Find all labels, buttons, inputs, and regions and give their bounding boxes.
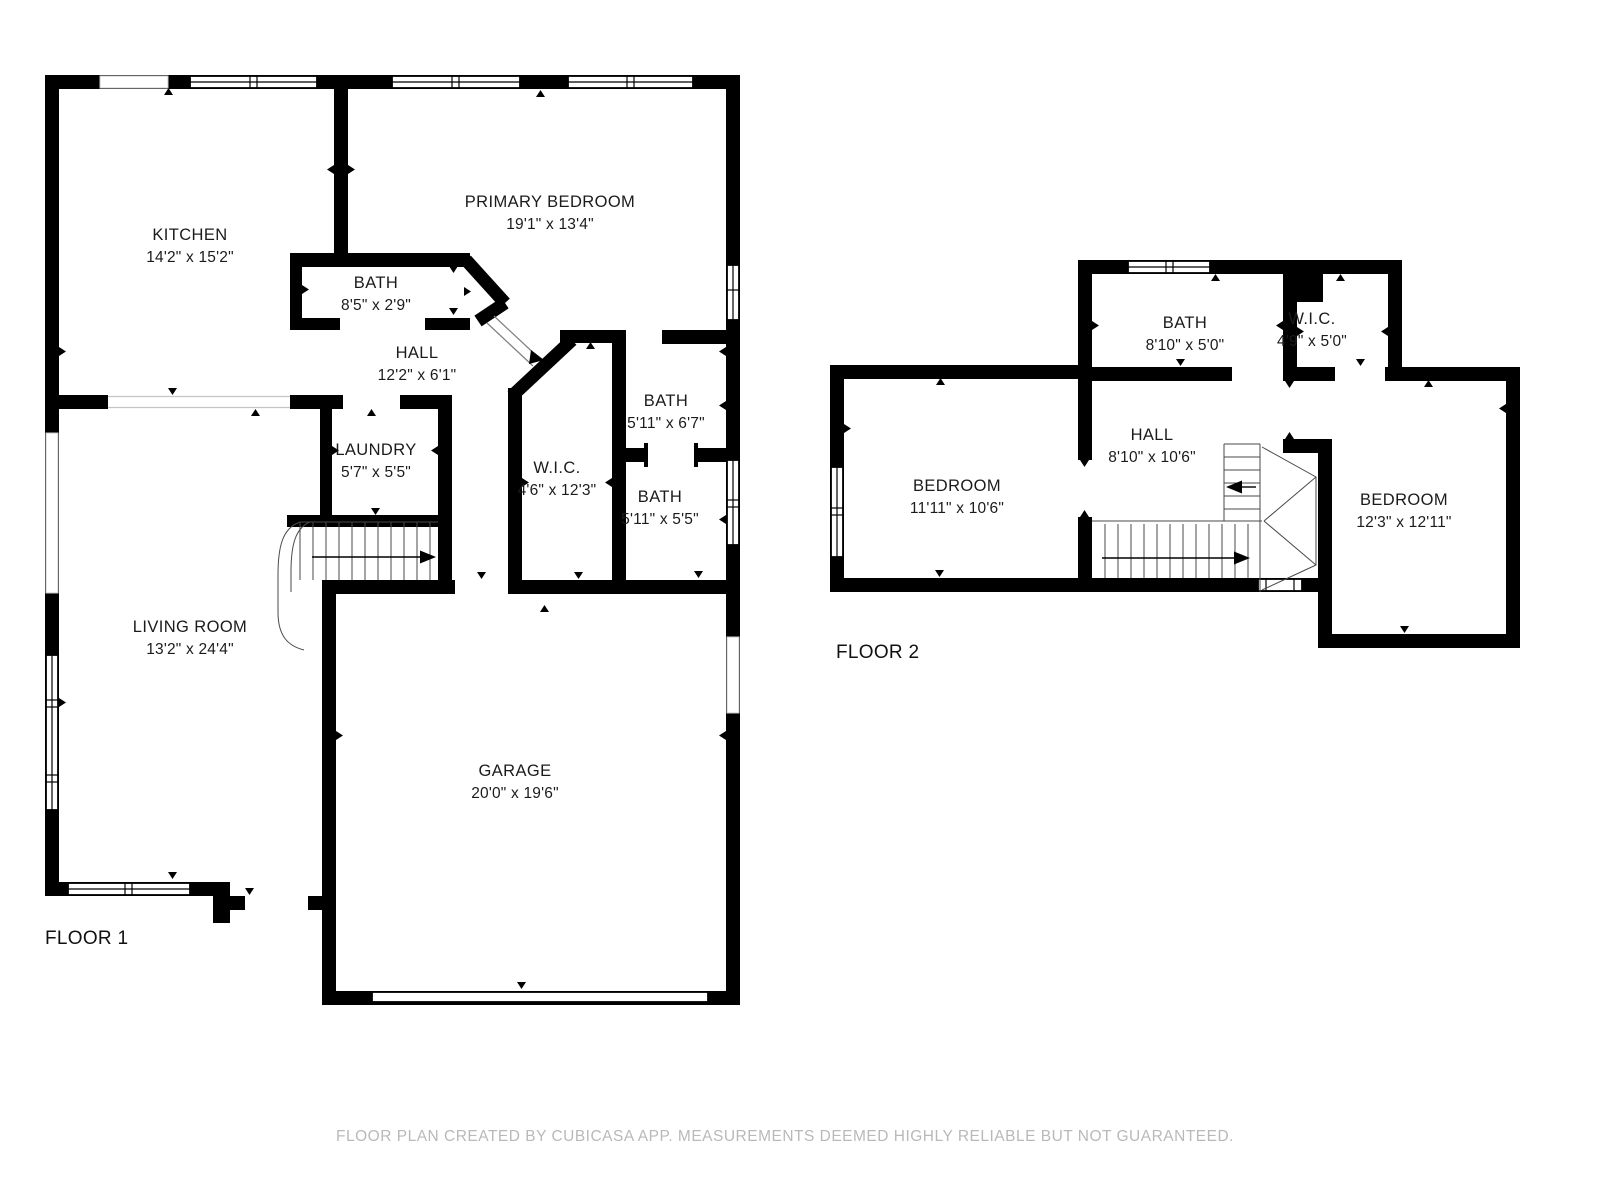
window-icon <box>190 76 317 88</box>
room-label-primary-bedroom: PRIMARY BEDROOM <box>465 193 635 211</box>
room-label-wic-f2: W.I.C. <box>1288 310 1335 328</box>
window-icon <box>46 655 58 810</box>
room-label-hall: HALL <box>396 344 439 362</box>
room-label-hall-f2: HALL <box>1131 426 1174 444</box>
window-icon <box>727 265 739 320</box>
floor2-room-labels: BATH 8'10" x 5'0" W.I.C. 4'9" x 5'0" HAL… <box>910 310 1452 531</box>
room-dims-bath-c: 5'11" x 5'5" <box>621 511 699 528</box>
room-dims-hall-f2: 8'10" x 10'6" <box>1108 449 1196 466</box>
floor2-stairs <box>1092 444 1316 592</box>
room-dims-hall: 12'2" x 6'1" <box>378 367 457 384</box>
room-dims-kitchen: 14'2" x 15'2" <box>146 249 234 266</box>
window-icon <box>568 76 693 88</box>
floor1-windows <box>46 76 739 1002</box>
room-label-bath-b: BATH <box>644 392 688 410</box>
room-dims-bath-a: 8'5" x 2'9" <box>341 297 411 314</box>
room-label-kitchen: KITCHEN <box>152 226 227 244</box>
room-dims-bath-b: 5'11" x 6'7" <box>627 415 705 432</box>
room-dims-garage: 20'0" x 19'6" <box>471 785 559 802</box>
room-dims-primary-bedroom: 19'1" x 13'4" <box>506 216 594 233</box>
disclaimer-text: FLOOR PLAN CREATED BY CUBICASA APP. MEAS… <box>336 1128 1234 1145</box>
window-icon <box>1128 261 1210 273</box>
door-arrow-markers <box>59 88 1506 989</box>
room-label-garage: GARAGE <box>478 762 551 780</box>
room-label-living-room: LIVING ROOM <box>133 618 247 636</box>
room-dims-living-room: 13'2" x 24'4" <box>146 641 234 658</box>
floor2-windows <box>831 261 1302 591</box>
window-icon <box>831 467 843 557</box>
room-label-laundry: LAUNDRY <box>335 441 416 459</box>
room-label-bath-a: BATH <box>354 274 398 292</box>
room-label-bedroom-2: BEDROOM <box>1360 491 1448 509</box>
window-icon <box>392 76 520 88</box>
floor-plan-svg: KITCHEN 14'2" x 15'2" PRIMARY BEDROOM 19… <box>0 0 1600 1200</box>
room-label-bedroom-1: BEDROOM <box>913 477 1001 495</box>
window-icon <box>68 883 190 895</box>
window-icon <box>727 460 739 545</box>
room-dims-laundry: 5'7" x 5'5" <box>341 464 411 481</box>
floor1-label: FLOOR 1 <box>45 928 128 949</box>
garage-door-icon <box>372 992 708 1002</box>
room-dims-bath-f2: 8'10" x 5'0" <box>1146 337 1225 354</box>
room-dims-wic: 4'6" x 12'3" <box>518 482 597 499</box>
room-dims-bedroom-2: 12'3" x 12'11" <box>1356 514 1451 531</box>
room-label-bath-f2: BATH <box>1163 314 1207 332</box>
floor2-label: FLOOR 2 <box>836 642 919 663</box>
room-label-bath-c: BATH <box>638 488 682 506</box>
room-dims-wic-f2: 4'9" x 5'0" <box>1277 333 1347 350</box>
room-label-wic: W.I.C. <box>533 459 580 477</box>
floor-plan-page: { "colors": { "wall": "#000000", "label_… <box>0 0 1600 1200</box>
room-dims-bedroom-1: 11'11" x 10'6" <box>910 500 1004 517</box>
floor1-walls <box>45 75 740 1005</box>
